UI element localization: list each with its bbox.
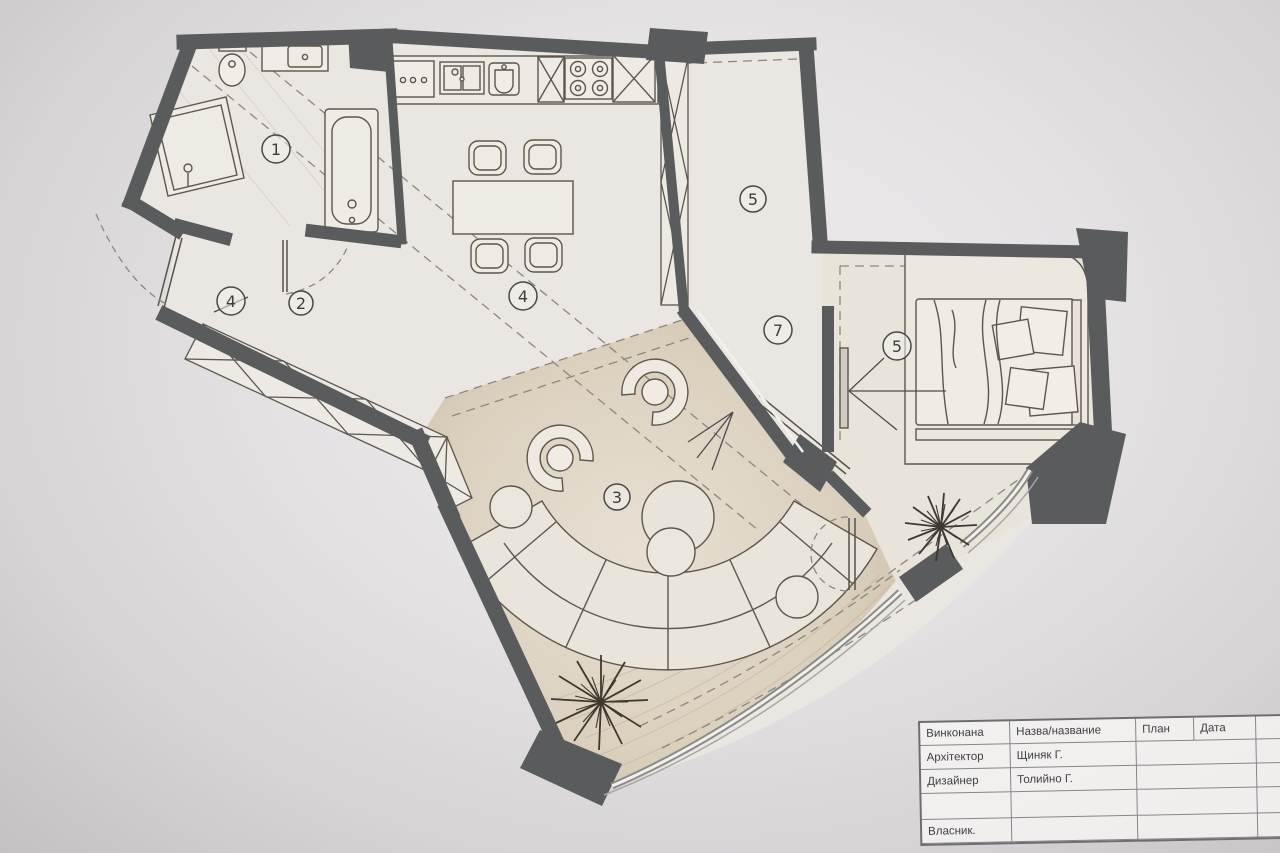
stove bbox=[565, 58, 612, 99]
svg-text:5: 5 bbox=[748, 190, 758, 209]
titleblock-architect-label: Архітектор bbox=[920, 744, 1010, 770]
titleblock-header-performed: Винконана bbox=[920, 721, 1010, 746]
titleblock-cell-empty bbox=[1138, 813, 1258, 839]
room-label-bedroom: 5 bbox=[883, 332, 911, 360]
room-label-corridor: 5 bbox=[740, 186, 766, 212]
titleblock-cell-empty bbox=[1011, 790, 1137, 818]
titleblock-owner-value bbox=[1012, 816, 1138, 842]
svg-text:2: 2 bbox=[296, 294, 306, 313]
titleblock-cell-empty bbox=[921, 792, 1011, 820]
titleblock-cell-empty bbox=[1257, 787, 1280, 813]
dining-chair bbox=[471, 239, 508, 273]
room-label-hallway: 2 bbox=[289, 291, 313, 315]
titleblock-cell-empty bbox=[1258, 813, 1280, 837]
bathtub bbox=[325, 109, 378, 232]
titleblock-owner-label: Власник. bbox=[922, 818, 1012, 844]
titleblock-cell-empty bbox=[1256, 739, 1280, 763]
titleblock-header-name: Назва/название bbox=[1010, 719, 1136, 744]
cabinet-x-1 bbox=[538, 57, 564, 102]
svg-text:4: 4 bbox=[518, 287, 528, 306]
door-marker: 7 bbox=[764, 316, 792, 344]
svg-text:3: 3 bbox=[612, 488, 622, 507]
side-table bbox=[776, 576, 818, 618]
cabinet-x-2 bbox=[613, 55, 655, 102]
titleblock-cell-empty bbox=[1137, 764, 1257, 790]
titleblock-cell-empty bbox=[1257, 763, 1280, 787]
dining-table bbox=[453, 181, 573, 234]
titleblock-header-date: Дата bbox=[1194, 717, 1256, 741]
side-table bbox=[490, 486, 532, 528]
titleblock-header-plan: План bbox=[1136, 718, 1194, 742]
dining-chair bbox=[524, 140, 561, 174]
svg-text:1: 1 bbox=[271, 140, 281, 159]
svg-text:5: 5 bbox=[892, 337, 902, 356]
titleblock-architect-name: Щиняк Г. bbox=[1010, 742, 1136, 768]
titleblock-header-extra bbox=[1256, 716, 1280, 739]
dining-chair bbox=[525, 238, 562, 272]
room-label-dining: 4 bbox=[509, 282, 537, 310]
kitchen-counter bbox=[390, 55, 658, 104]
room-label-living: 3 bbox=[604, 484, 630, 510]
svg-text:7: 7 bbox=[773, 321, 783, 340]
titleblock-cell-empty bbox=[1136, 740, 1256, 766]
titleblock-designer-label: Дизайнер bbox=[921, 768, 1011, 794]
entry-marker: 4 bbox=[217, 287, 245, 315]
room-label-bathroom: 1 bbox=[262, 135, 290, 163]
coffee-table bbox=[647, 528, 695, 576]
dining-chair bbox=[469, 141, 506, 175]
kitchen-sink bbox=[440, 62, 484, 94]
bed bbox=[905, 252, 1088, 464]
title-block: Винконана Назва/название План Дата Архіт… bbox=[918, 714, 1280, 846]
titleblock-designer-name: Толийно Г. bbox=[1011, 766, 1137, 792]
tv-panel bbox=[840, 348, 848, 428]
svg-text:4: 4 bbox=[226, 292, 236, 311]
small-basin bbox=[489, 63, 519, 95]
titleblock-cell-empty bbox=[1137, 787, 1257, 815]
